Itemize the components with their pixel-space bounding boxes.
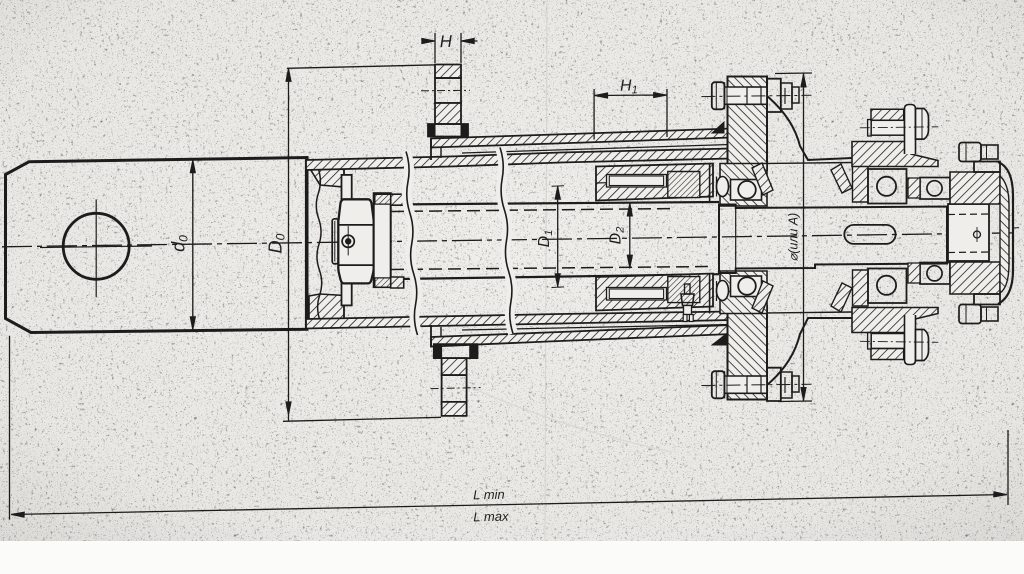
svg-text:L max: L max — [473, 509, 509, 525]
svg-text:⌀(или А): ⌀(или А) — [787, 213, 801, 262]
svg-text:H: H — [439, 32, 453, 51]
svg-text:L min: L min — [473, 487, 505, 503]
